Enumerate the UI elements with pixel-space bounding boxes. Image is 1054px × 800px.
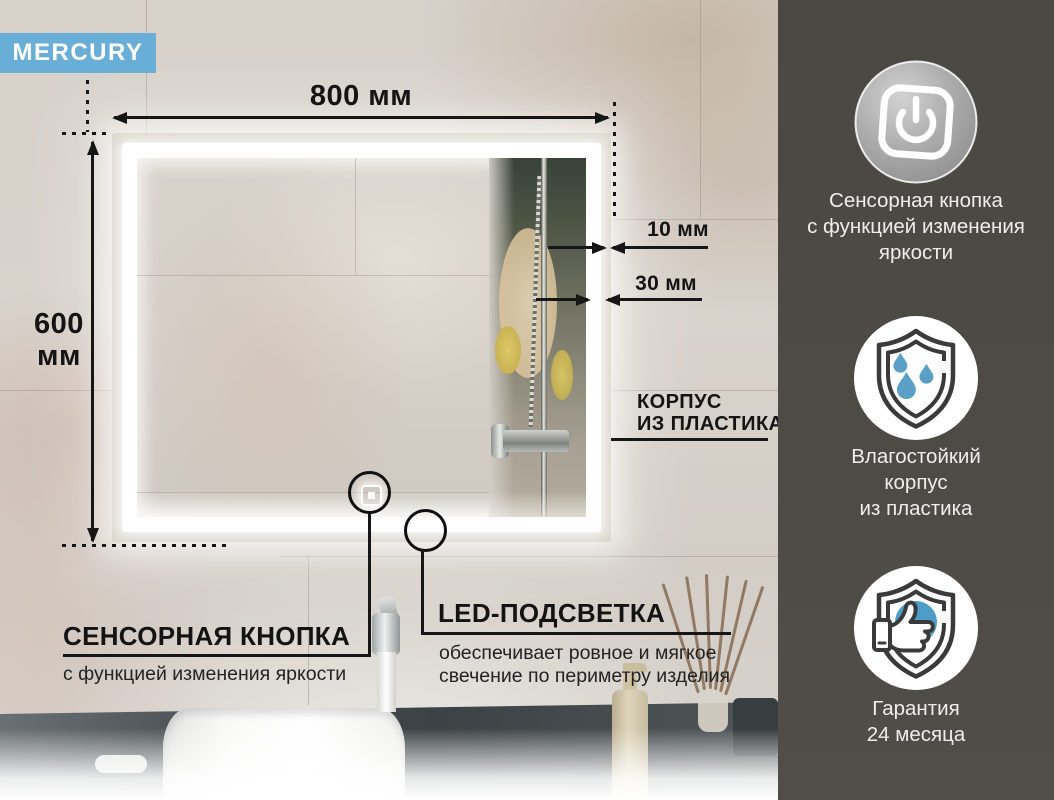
product-infographic: MERCURY 800 мм 600 мм 10 мм 30 мм КОРПУС… <box>0 0 1054 800</box>
touch-callout-circle <box>348 471 391 514</box>
arrowhead-right <box>592 242 607 254</box>
body-callout: КОРПУС ИЗ ПЛАСТИКА <box>637 391 783 435</box>
reflected-shower-rail <box>541 158 547 517</box>
feature-2-line2: корпус <box>778 470 1054 496</box>
features-sidebar: Сенсорная кнопка с функцией изменения яр… <box>778 0 1054 800</box>
body-callout-line2: ИЗ ПЛАСТИКА <box>637 413 783 435</box>
feature-3-caption: Гарантия 24 месяца <box>778 696 1054 748</box>
shield-waterdrops-icon <box>854 316 978 440</box>
led-callout-title: LED-ПОДСВЕТКА <box>438 598 665 629</box>
edge-gap-line-right <box>613 246 708 249</box>
height-dimension-line <box>91 142 94 541</box>
touch-callout-title: СЕНСОРНАЯ КНОПКА <box>63 621 350 652</box>
led-callout-sub1: обеспечивает ровное и мягкое <box>439 642 730 665</box>
reflected-shower-column <box>489 158 586 517</box>
brand-label: MERCURY <box>13 39 144 67</box>
touch-callout-connector <box>368 513 371 656</box>
body-callout-line1: КОРПУС <box>637 391 783 413</box>
strip-width-label: 30 мм <box>626 272 706 296</box>
arrowhead-left <box>605 294 620 306</box>
height-dimension-label: 600 мм <box>24 308 94 372</box>
feature-2-caption: Влагостойкий корпус из пластика <box>778 444 1054 522</box>
arrowhead-left <box>610 242 625 254</box>
shield-thumbsup-icon <box>854 566 978 690</box>
feature-1-caption: Сенсорная кнопка с функцией изменения яр… <box>778 188 1054 266</box>
extension-line <box>86 80 89 132</box>
led-callout-connector <box>421 550 424 634</box>
mirror-reflection <box>137 158 586 517</box>
edge-gap-label: 10 мм <box>638 218 718 242</box>
led-callout-sub2: свечение по периметру изделия <box>439 665 730 688</box>
width-dimension-line <box>114 116 608 119</box>
power-button-icon <box>854 60 978 184</box>
tile-seam <box>280 556 778 557</box>
led-callout-subtitle: обеспечивает ровное и мягкое свечение по… <box>439 642 730 688</box>
arrowhead-down <box>87 528 99 543</box>
faucet <box>372 613 400 655</box>
reflected-towel <box>495 326 521 374</box>
feature-3-line2: 24 месяца <box>778 722 1054 748</box>
tile-seam <box>700 0 701 219</box>
arrowhead-right <box>576 294 591 306</box>
feature-1-line1: Сенсорная кнопка <box>778 188 1054 214</box>
strip-width-line-left <box>536 298 588 301</box>
edge-gap-line-left <box>548 246 604 249</box>
bottom-fade <box>0 728 778 800</box>
led-callout-circle <box>404 509 447 552</box>
brand-badge: MERCURY <box>0 33 156 73</box>
feature-3-line1: Гарантия <box>778 696 1054 722</box>
height-value: 600 <box>24 308 94 340</box>
touch-callout-rule <box>63 654 371 657</box>
feature-1-line3: яркости <box>778 240 1054 266</box>
faucet-column <box>377 652 396 712</box>
width-dimension-label: 800 мм <box>281 80 441 113</box>
feature-2-line1: Влагостойкий <box>778 444 1054 470</box>
feature-2-line3: из пластика <box>778 496 1054 522</box>
touch-callout-subtitle: с функцией изменения яркости <box>63 663 346 686</box>
arrowhead-up <box>87 140 99 155</box>
body-callout-rule <box>611 438 768 441</box>
reflected-tile-seam <box>355 158 356 275</box>
extension-line <box>613 102 616 220</box>
reflected-mixer <box>503 430 569 452</box>
strip-width-line-right <box>608 298 702 301</box>
extension-line <box>62 544 228 547</box>
feature-1-line2: с функцией изменения <box>778 214 1054 240</box>
height-unit: мм <box>24 340 94 372</box>
extension-line <box>62 132 110 135</box>
led-callout-rule <box>421 632 731 635</box>
arrowhead-right <box>595 112 610 124</box>
reflected-towel <box>551 350 573 400</box>
arrowhead-left <box>112 112 127 124</box>
